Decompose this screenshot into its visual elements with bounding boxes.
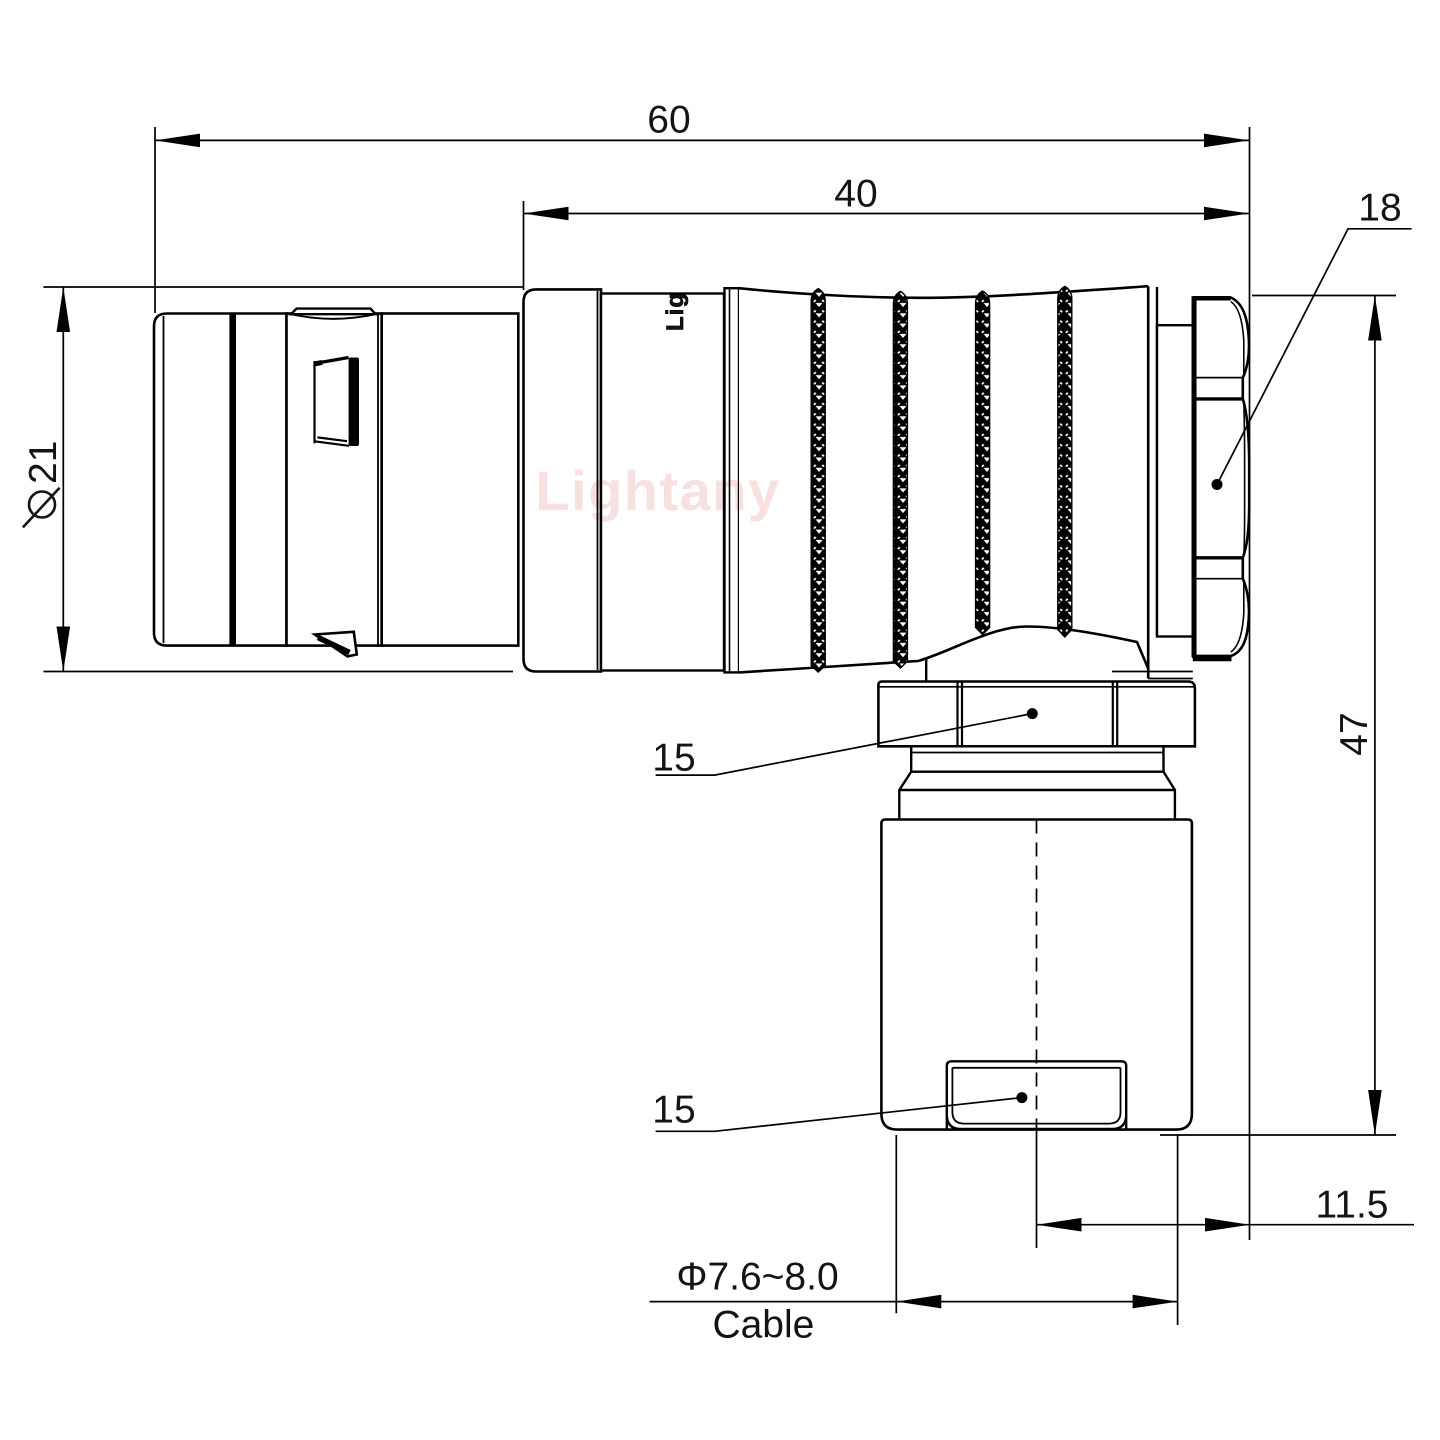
- svg-text:Cable: Cable: [712, 1304, 814, 1347]
- svg-text:Φ7.6~8.0: Φ7.6~8.0: [676, 1256, 838, 1299]
- svg-text:15: 15: [652, 737, 695, 780]
- svg-text:11.5: 11.5: [1315, 1184, 1388, 1227]
- svg-text:Lightany: Lightany: [535, 459, 780, 522]
- svg-text:15: 15: [652, 1089, 695, 1132]
- svg-text:47: 47: [1333, 712, 1376, 755]
- svg-text:18: 18: [1358, 187, 1401, 230]
- svg-text:60: 60: [647, 99, 690, 142]
- svg-text:21: 21: [22, 441, 65, 484]
- svg-text:40: 40: [834, 173, 877, 216]
